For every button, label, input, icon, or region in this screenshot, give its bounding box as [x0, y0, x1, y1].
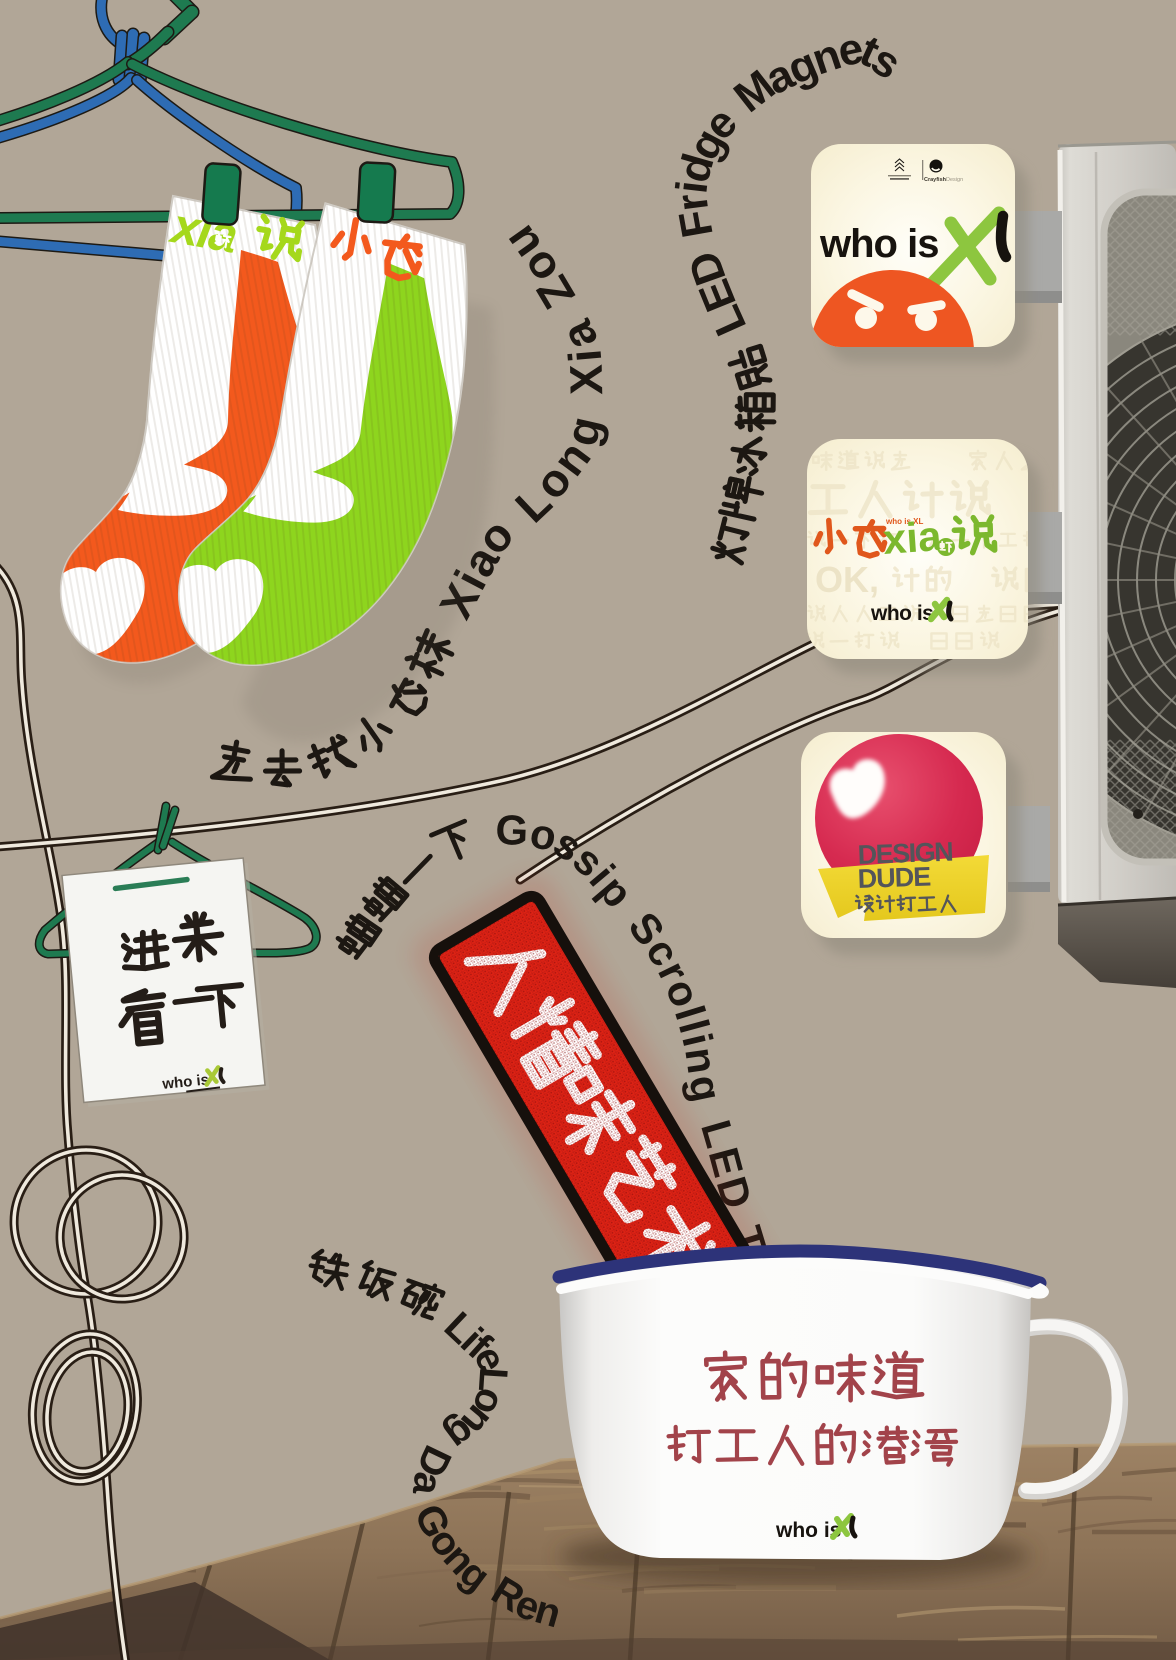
svg-text:xia: xia — [881, 512, 943, 563]
svg-text:CrayfishDesign: CrayfishDesign — [924, 177, 963, 183]
svg-text:G: G — [495, 806, 529, 854]
svg-text:DUDE: DUDE — [857, 861, 931, 894]
svg-text:OK,: OK, — [815, 559, 879, 600]
svg-text:who is: who is — [870, 602, 933, 625]
svg-text:who is: who is — [819, 222, 938, 266]
svg-text:X: X — [560, 363, 613, 395]
